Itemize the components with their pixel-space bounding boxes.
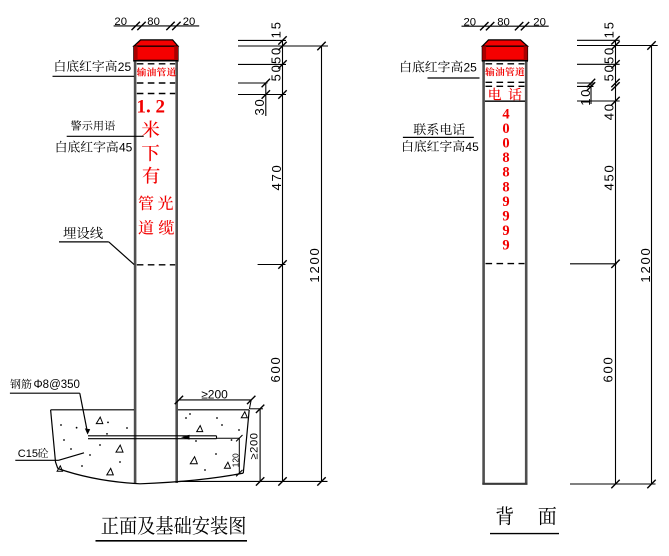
svg-text:1200: 1200	[307, 246, 322, 282]
svg-text:50: 50	[601, 46, 616, 64]
svg-text:50: 50	[268, 63, 283, 81]
svg-text:80: 80	[147, 16, 160, 28]
svg-text:600: 600	[268, 355, 283, 382]
svg-text:0: 0	[502, 121, 509, 137]
svg-text:10: 10	[578, 88, 593, 106]
svg-text:120: 120	[231, 453, 241, 467]
svg-text:1. 2: 1. 2	[136, 96, 165, 117]
svg-text:20: 20	[114, 16, 127, 28]
svg-text:15: 15	[268, 20, 283, 38]
svg-text:9: 9	[502, 223, 509, 239]
svg-text:470: 470	[269, 163, 284, 190]
svg-text:30: 30	[252, 97, 267, 115]
svg-text:9: 9	[502, 209, 509, 225]
svg-text:20: 20	[183, 16, 196, 28]
svg-text:80: 80	[497, 16, 510, 28]
svg-text:20: 20	[464, 16, 477, 28]
svg-text:15: 15	[601, 20, 616, 38]
svg-text:20: 20	[533, 16, 546, 28]
svg-text:25: 25	[464, 60, 478, 74]
svg-text:1200: 1200	[638, 246, 653, 282]
svg-text:600: 600	[601, 355, 616, 382]
svg-text:45: 45	[119, 141, 133, 155]
svg-text:45: 45	[465, 140, 479, 154]
svg-text:50: 50	[601, 63, 616, 81]
svg-text:≥200: ≥200	[248, 432, 260, 459]
svg-text:50: 50	[268, 46, 283, 64]
svg-text:C15: C15	[18, 448, 38, 460]
svg-text:25: 25	[118, 60, 132, 74]
svg-text:0: 0	[502, 136, 509, 152]
svg-text:8: 8	[502, 179, 509, 195]
svg-text:9: 9	[502, 238, 509, 254]
svg-text:8: 8	[502, 165, 509, 181]
svg-text:8: 8	[502, 150, 509, 166]
svg-text:Φ8@350: Φ8@350	[34, 379, 80, 391]
svg-text:4: 4	[502, 106, 509, 122]
svg-text:450: 450	[601, 163, 616, 190]
svg-text:40: 40	[601, 102, 616, 120]
svg-text:9: 9	[502, 194, 509, 210]
